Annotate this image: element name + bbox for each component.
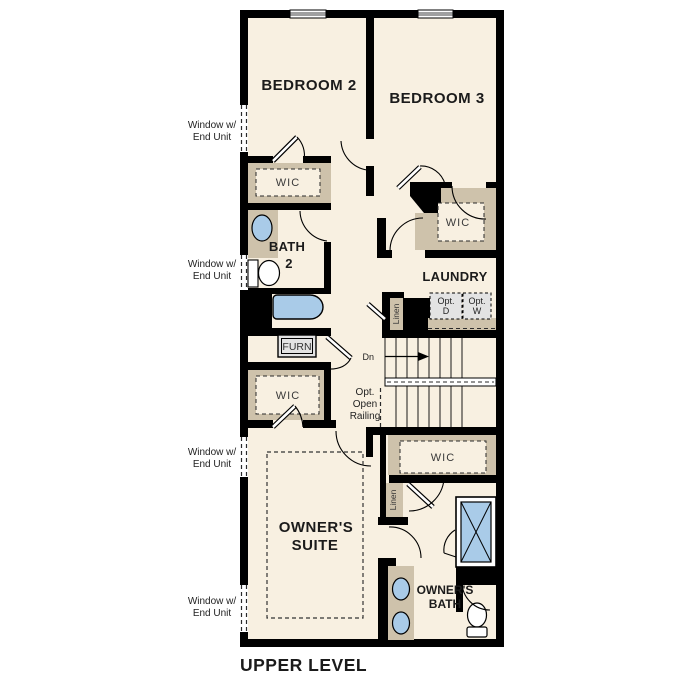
owners-sink-1 (393, 578, 410, 600)
opt-d-label-1: Opt. (437, 296, 454, 306)
opt-d-label-2: D (443, 306, 450, 316)
window-note-3-l1: Window w/ (188, 447, 237, 458)
window-note-1-l2: End Unit (193, 132, 232, 143)
railing-label-3: Railing (350, 411, 381, 422)
opt-w-label-2: W (473, 306, 482, 316)
window-note-1: Window w/ End Unit (188, 120, 237, 143)
owners-bath-label-1: OWNER'S (417, 583, 474, 597)
linen2-label: Linen (388, 489, 398, 510)
floor-plan: BEDROOM 2 BEDROOM 3 WIC BATH 2 WIC LAUND… (0, 0, 687, 687)
opt-w-label-1: Opt. (468, 296, 485, 306)
top-window-1 (290, 10, 326, 18)
bath2-label-1: BATH (269, 239, 305, 254)
owners-suite-label-2: SUITE (292, 537, 339, 554)
window-note-1-l1: Window w/ (188, 120, 237, 131)
window-note-3: Window w/ End Unit (188, 447, 237, 470)
bath2-sink (252, 215, 272, 241)
window-note-3-l2: End Unit (193, 459, 232, 470)
furn-label: FURN (282, 341, 311, 353)
page-title: UPPER LEVEL (240, 655, 367, 675)
window-note-2-l1: Window w/ (188, 259, 237, 270)
bathtub (273, 295, 323, 319)
window-note-2-l2: End Unit (193, 271, 232, 282)
owners-sink-2 (393, 612, 410, 634)
window-note-2: Window w/ End Unit (188, 259, 237, 282)
bath2-label-2: 2 (285, 256, 293, 271)
window-note-4-l1: Window w/ (188, 596, 237, 607)
bedroom2-label: BEDROOM 2 (261, 77, 356, 94)
dn-label: Dn (362, 352, 374, 362)
owners-toilet (467, 603, 487, 637)
wic4-label: WIC (431, 452, 455, 464)
owners-bath-label-2: BATH (429, 597, 461, 611)
railing-label-1: Opt. (356, 387, 375, 398)
railing-label-2: Open (353, 399, 377, 410)
wic1-label: WIC (276, 177, 300, 189)
wic2-label: WIC (276, 390, 300, 402)
linen1-label: Linen (391, 303, 401, 324)
wic3-label: WIC (446, 217, 470, 229)
floor-plan-page: BEDROOM 2 BEDROOM 3 WIC BATH 2 WIC LAUND… (0, 0, 687, 687)
laundry-label: LAUNDRY (422, 269, 487, 284)
window-note-4-l2: End Unit (193, 608, 232, 619)
bedroom3-label: BEDROOM 3 (389, 90, 484, 107)
window-note-4: Window w/ End Unit (188, 596, 237, 619)
owners-suite-label-1: OWNER'S (279, 519, 354, 536)
top-window-2 (418, 10, 453, 18)
bath2-toilet (248, 260, 280, 287)
